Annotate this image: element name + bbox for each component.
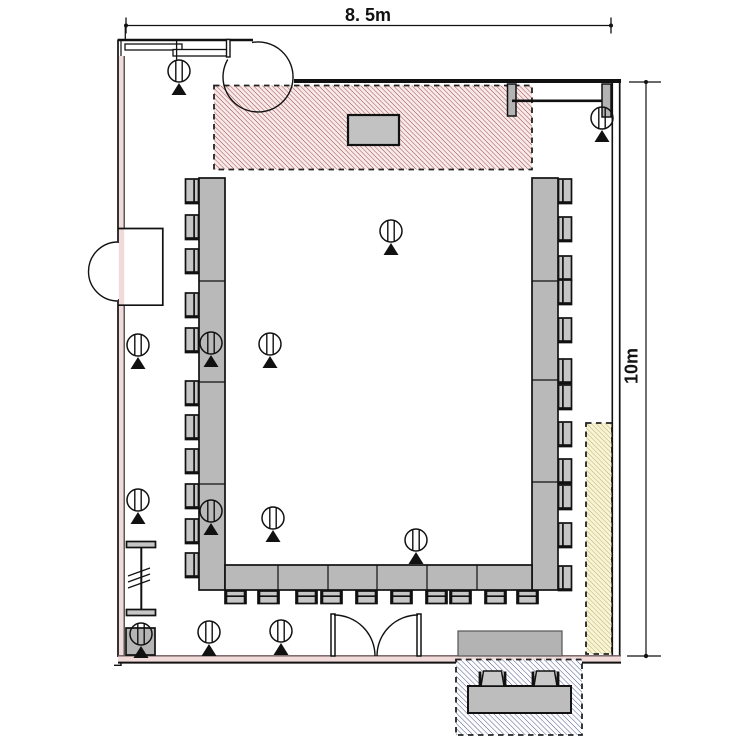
svg-text:10m: 10m — [622, 348, 642, 384]
svg-text:8. 5m: 8. 5m — [345, 5, 391, 25]
